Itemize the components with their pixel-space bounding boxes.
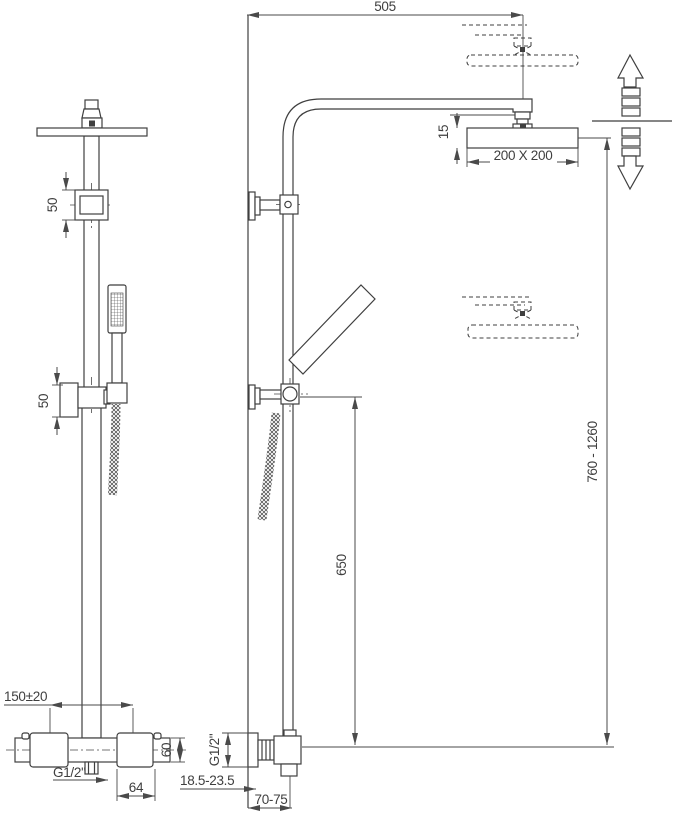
dim-arm-reach: 505 bbox=[247, 0, 523, 15]
riser-pipe-lower bbox=[82, 406, 101, 738]
riser-pipe-upper bbox=[84, 136, 99, 410]
handset-holder-side bbox=[249, 378, 308, 412]
dim-holder-to-valve-label: 650 bbox=[334, 554, 349, 576]
valve-body-side bbox=[274, 736, 301, 764]
valve-outlet-side bbox=[281, 764, 297, 776]
dashed-ceiling-detail bbox=[462, 25, 578, 66]
dim-valve-projection-label: 70-75 bbox=[254, 792, 287, 807]
dim-valve-projection: 70-75 bbox=[248, 792, 292, 808]
hand-shower-front bbox=[108, 285, 126, 383]
holder-wall-block bbox=[60, 383, 78, 417]
front-view bbox=[6, 100, 186, 774]
wall-flange bbox=[248, 733, 258, 767]
temperature-handle bbox=[30, 733, 68, 767]
holder-cup bbox=[107, 383, 127, 403]
dim-inlet-thread-label: G1/2" bbox=[207, 733, 222, 766]
shower-column-technical-drawing: 505 15 200 X 200 50 50 650 bbox=[0, 0, 674, 818]
dim-upper-bracket-label: 50 bbox=[45, 198, 60, 212]
rain-head-side bbox=[467, 128, 578, 148]
dim-outlet-thread: G1/2" bbox=[53, 765, 108, 780]
dim-handle-width: 64 bbox=[117, 769, 155, 801]
dim-handle-width-label: 64 bbox=[129, 780, 144, 795]
dim-handset-holder: 50 bbox=[36, 367, 63, 435]
drawing-canvas: 505 15 200 X 200 50 50 650 bbox=[0, 0, 674, 818]
dim-height-range: 760 - 1260 bbox=[578, 138, 611, 745]
dim-head-thickness-label: 15 bbox=[436, 125, 451, 139]
rain-head-front bbox=[37, 128, 147, 136]
connector-screw bbox=[89, 121, 95, 127]
down-arrow-icon bbox=[618, 156, 643, 189]
dim-head-size: 200 X 200 bbox=[467, 148, 578, 167]
dim-inlet-spacing-label: 150±20 bbox=[4, 689, 47, 704]
height-adjustment-indicator bbox=[592, 55, 672, 189]
dim-handset-holder-label: 50 bbox=[36, 394, 51, 408]
shower-hose-side bbox=[262, 413, 276, 520]
dim-valve-height-label: 60 bbox=[159, 743, 174, 757]
hand-shower-handle bbox=[112, 333, 122, 383]
dim-wall-adjustment: 18.5-23.5 bbox=[180, 773, 256, 789]
dim-inlet-spacing: 150±20 bbox=[4, 689, 133, 733]
dim-head-size-label: 200 X 200 bbox=[494, 148, 553, 163]
side-view bbox=[248, 15, 578, 808]
head-connector-side bbox=[513, 112, 532, 130]
up-arrow-icon bbox=[618, 55, 643, 87]
dim-height-range-label: 760 - 1260 bbox=[585, 421, 600, 483]
upper-bracket-side bbox=[249, 192, 303, 220]
head-swivel-connector bbox=[82, 100, 102, 128]
holder-slider bbox=[78, 387, 106, 408]
dim-arm-reach-label: 505 bbox=[374, 0, 396, 14]
dim-holder-to-valve: 650 bbox=[300, 397, 362, 745]
riser-and-arm-side bbox=[283, 99, 532, 737]
shower-hose-front bbox=[113, 404, 117, 495]
hand-shower-side bbox=[289, 285, 375, 374]
dim-wall-adjustment-label: 18.5-23.5 bbox=[180, 773, 234, 788]
flow-handle bbox=[117, 733, 153, 767]
valve-outlet bbox=[85, 762, 98, 774]
dim-outlet-thread-label: G1/2" bbox=[53, 765, 86, 780]
dim-inlet-thread: G1/2" bbox=[207, 733, 250, 767]
dashed-bracket-detail bbox=[462, 297, 578, 338]
spray-face bbox=[111, 293, 123, 326]
